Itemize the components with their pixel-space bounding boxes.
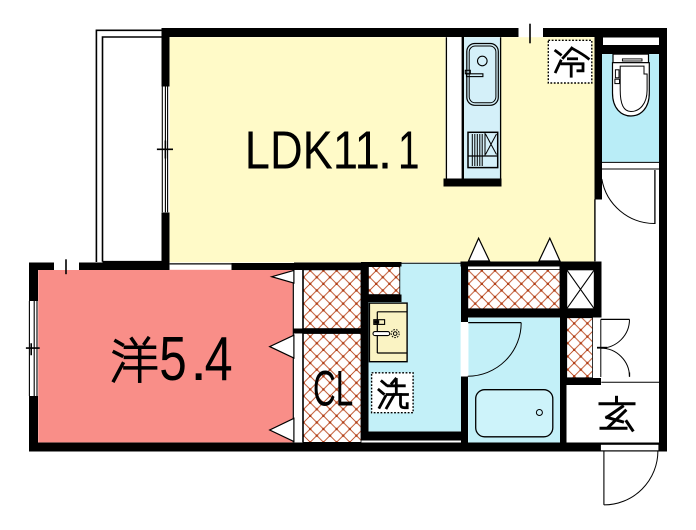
svg-text:4: 4 <box>205 325 233 394</box>
svg-text:1: 1 <box>398 121 420 181</box>
svg-text:CL: CL <box>313 360 353 416</box>
svg-text:.: . <box>378 121 393 181</box>
svg-text:LDK11: LDK11 <box>245 121 380 181</box>
svg-text:5: 5 <box>159 325 187 394</box>
